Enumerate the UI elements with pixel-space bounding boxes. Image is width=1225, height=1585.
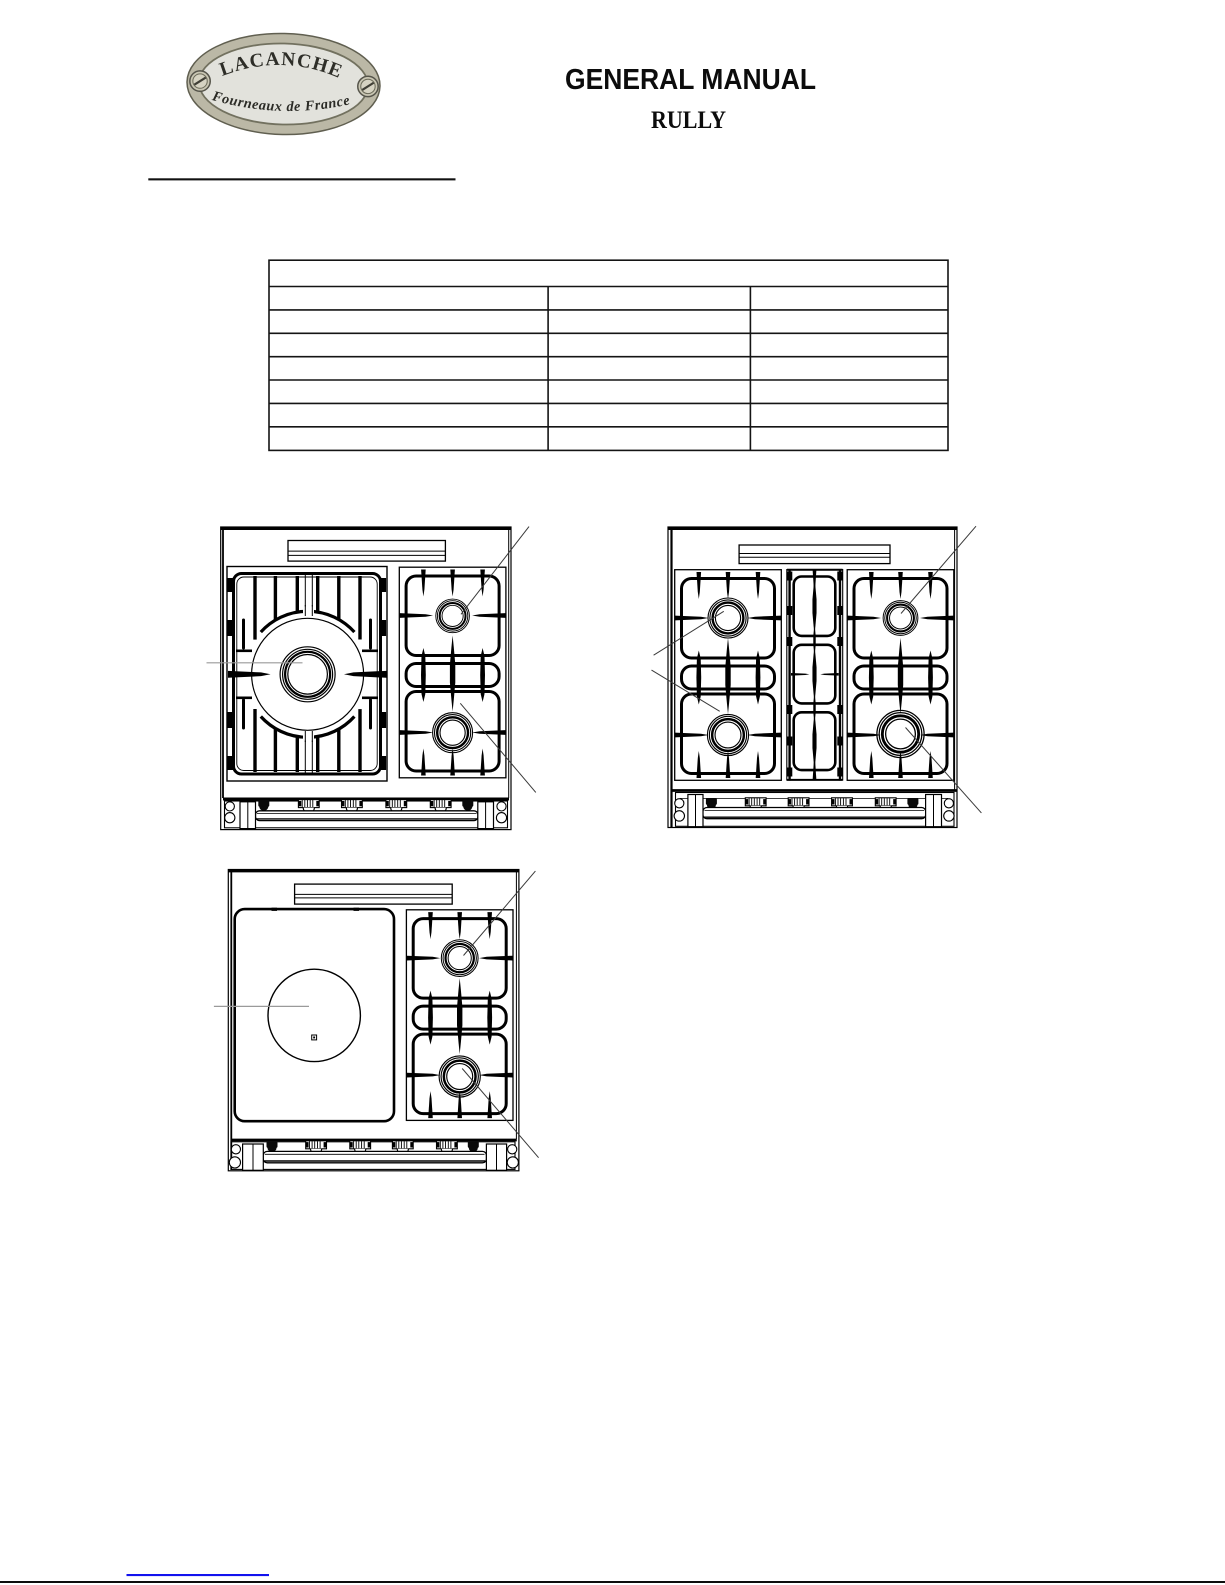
svg-text:RULLY: RULLY <box>651 106 726 134</box>
svg-text:GENERAL MANUAL: GENERAL MANUAL <box>565 64 816 96</box>
